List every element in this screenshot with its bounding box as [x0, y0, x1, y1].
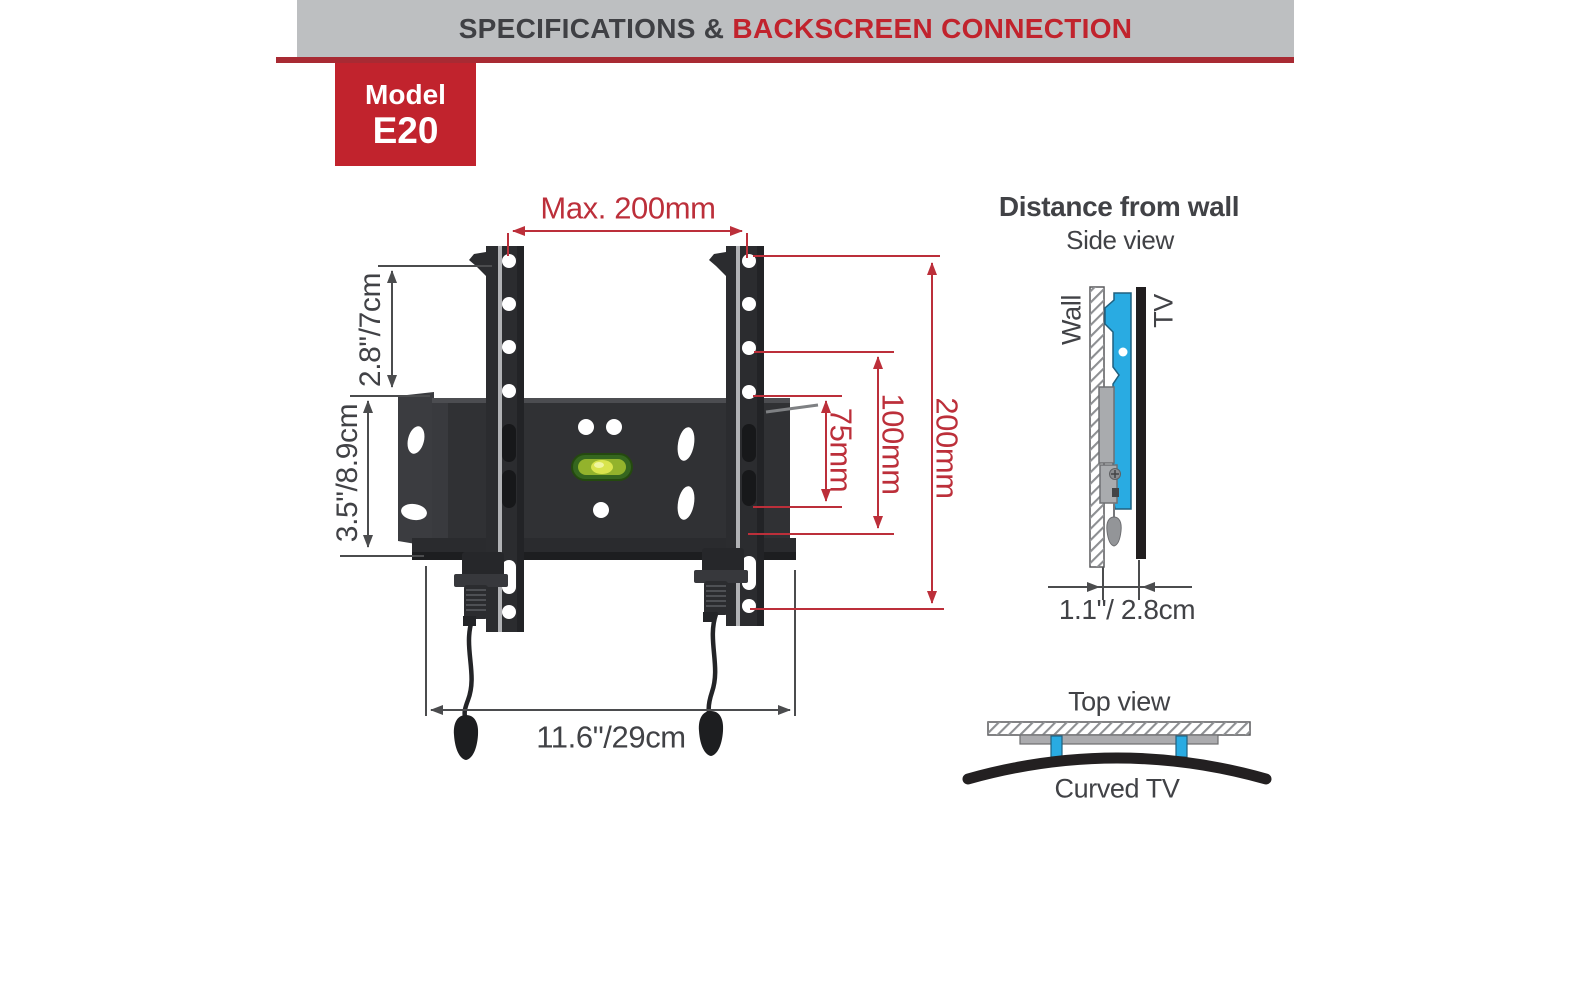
plate-shading — [432, 403, 448, 538]
dim-label-total-width: 11.6"/29cm — [536, 722, 685, 753]
right-pull-string — [709, 614, 716, 713]
dim-label-100mm: 100mm — [878, 393, 909, 494]
side-view-title: Distance from wall — [999, 193, 1239, 221]
top-view-drawing — [968, 722, 1266, 779]
dim-label-wall-distance: 1.1"/ 2.8cm — [1059, 596, 1195, 624]
dim-label-200mm: 200mm — [932, 397, 963, 498]
blue-bracket-top — [1176, 736, 1187, 757]
plate-hole — [593, 502, 609, 518]
technical-drawing — [0, 0, 1588, 1000]
tv-bar — [1136, 287, 1146, 559]
tv-label: TV — [1151, 294, 1178, 328]
dim-label-hook-height: 2.8"/7cm — [356, 273, 386, 387]
left-pull-string — [465, 620, 472, 717]
wall-mount-front-view — [398, 246, 818, 760]
right-pull-cone — [699, 711, 723, 756]
plate-hole — [578, 419, 594, 435]
bubble-level — [572, 454, 632, 480]
spec-sheet: SPECIFICATIONS & BACKSCREEN CONNECTION M… — [0, 0, 1588, 1000]
plate-hole — [606, 419, 622, 435]
blue-bracket-top — [1051, 736, 1062, 757]
plate-left-flange — [398, 392, 434, 547]
wall-label: Wall — [1059, 295, 1086, 345]
wall-strip-top-hatch — [988, 722, 1250, 735]
side-view-drawing — [1090, 287, 1146, 567]
mount-plate-top — [1020, 735, 1218, 744]
side-pull-cone — [1107, 517, 1121, 546]
bracket-hole — [1119, 348, 1128, 357]
dim-label-max-width: Max. 200mm — [540, 193, 715, 224]
top-view-title: Top view — [1068, 689, 1170, 716]
curved-tv-caption: Curved TV — [1055, 776, 1180, 803]
clamp-latch — [1112, 488, 1119, 497]
dim-label-plate-height: 3.5"/8.9cm — [333, 404, 363, 542]
left-pull-cone — [454, 715, 478, 760]
side-view-subtitle: Side view — [1066, 227, 1174, 253]
wall-plate-profile — [1099, 387, 1114, 463]
dim-label-75mm: 75mm — [826, 408, 857, 493]
